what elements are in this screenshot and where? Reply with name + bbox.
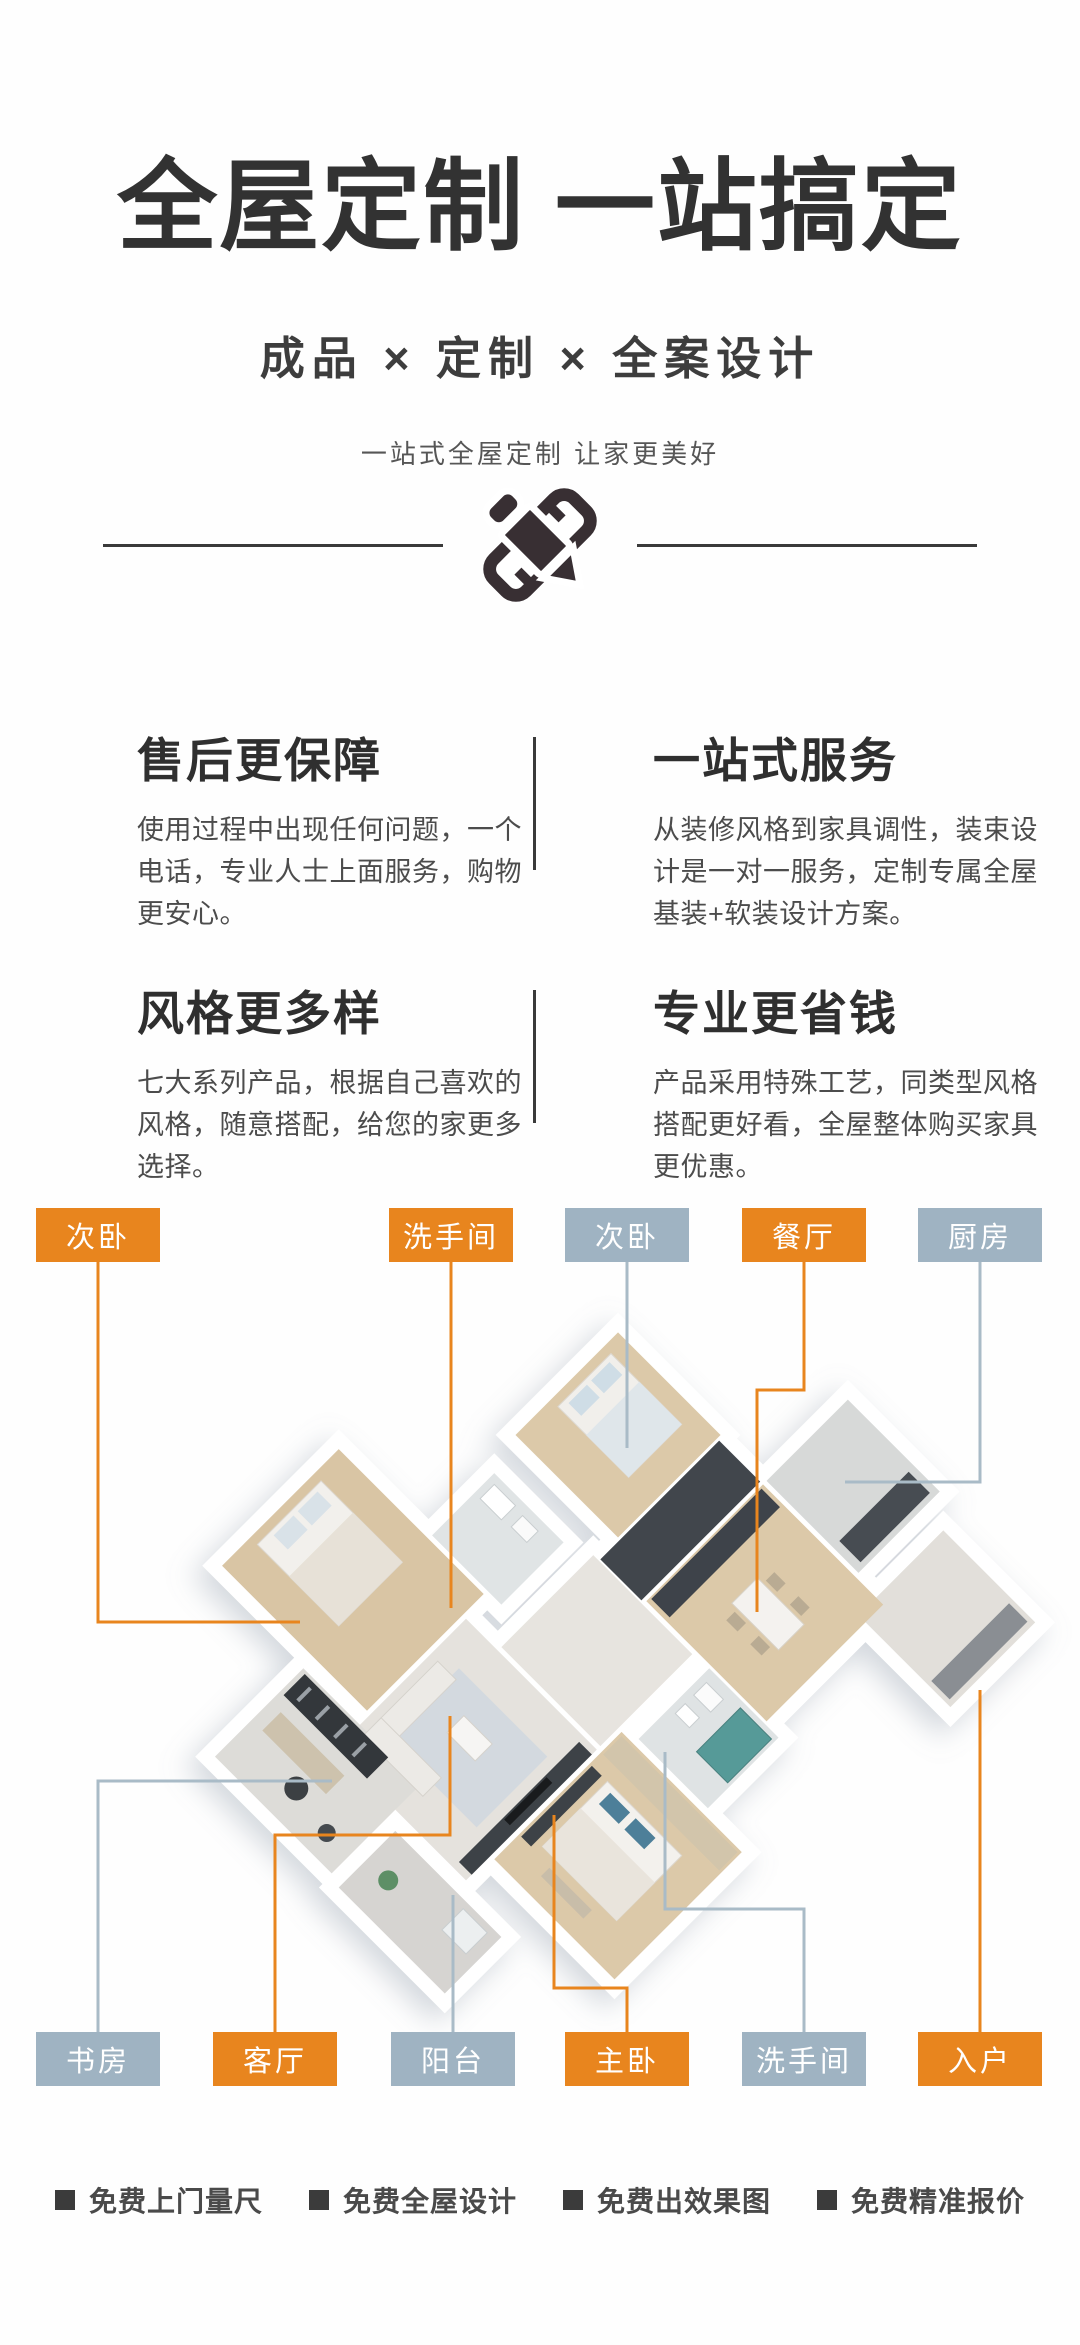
subtitle: 成品 × 定制 × 全案设计 xyxy=(0,322,1080,387)
square-bullet-icon xyxy=(55,2190,75,2210)
room-label-balcony: 阳台 xyxy=(391,2032,515,2086)
divider-line-left xyxy=(103,544,443,547)
promo-poster: 全屋定制 一站搞定 成品 × 定制 × 全案设计 一站式全屋定制 让家更美好 售… xyxy=(0,0,1080,2345)
square-bullet-icon xyxy=(309,2190,329,2210)
floorplan-section: 次卧 洗手间 次卧 餐厅 厨房 书房 客厅 阳台 主卧 洗手间 入户 xyxy=(0,1195,1080,2100)
feature-savings: 专业更省钱 产品采用特殊工艺，同类型风格搭配更好看，全屋整体购买家具更优惠。 xyxy=(653,990,1045,1188)
feature-desc: 使用过程中出现任何问题，一个电话，专业人士上面服务，购物更安心。 xyxy=(137,809,522,935)
room-label-dining: 餐厅 xyxy=(742,1208,866,1262)
service-footer: 免费上门量尺 免费全屋设计 免费出效果图 免费精准报价 xyxy=(0,2180,1080,2220)
footer-item-design: 免费全屋设计 xyxy=(309,2180,517,2220)
feature-divider-top xyxy=(533,737,536,870)
room-label-kitchen: 厨房 xyxy=(918,1208,1042,1262)
feature-onestop: 一站式服务 从装修风格到家具调性，装束设计是一对一服务，定制专属全屋基装+软装设… xyxy=(653,737,1045,935)
room-label-bathroom-top: 洗手间 xyxy=(389,1208,513,1262)
square-bullet-icon xyxy=(563,2190,583,2210)
footer-item-label: 免费精准报价 xyxy=(851,2180,1025,2220)
footer-item-label: 免费出效果图 xyxy=(597,2180,771,2220)
feature-styles: 风格更多样 七大系列产品，根据自己喜欢的风格，随意搭配，给您的家更多选择。 xyxy=(137,990,529,1188)
footer-item-label: 免费上门量尺 xyxy=(89,2180,263,2220)
room-label-study: 书房 xyxy=(36,2032,160,2086)
footer-item-quote: 免费精准报价 xyxy=(817,2180,1025,2220)
room-label-living: 客厅 xyxy=(213,2032,337,2086)
room-label-bedroom3-top: 次卧 xyxy=(565,1208,689,1262)
feature-desc: 产品采用特殊工艺，同类型风格搭配更好看，全屋整体购买家具更优惠。 xyxy=(653,1062,1038,1188)
square-bullet-icon xyxy=(817,2190,837,2210)
feature-title: 风格更多样 xyxy=(137,990,529,1037)
room-label-bathroom-bottom: 洗手间 xyxy=(742,2032,866,2086)
apartment-3d-model xyxy=(100,1195,1073,2100)
feature-title: 售后更保障 xyxy=(137,737,529,784)
divider-line-right xyxy=(637,544,977,547)
feature-divider-bottom xyxy=(533,990,536,1123)
feature-desc: 七大系列产品，根据自己喜欢的风格，随意搭配，给您的家更多选择。 xyxy=(137,1062,522,1188)
feature-desc: 从装修风格到家具调性，装束设计是一对一服务，定制专属全屋基装+软装设计方案。 xyxy=(653,809,1038,935)
header-divider xyxy=(0,455,1080,635)
page-title: 全屋定制 一站搞定 xyxy=(0,152,1080,262)
room-label-master: 主卧 xyxy=(565,2032,689,2086)
floorplan-render xyxy=(0,1195,1080,2100)
footer-item-measure: 免费上门量尺 xyxy=(55,2180,263,2220)
pencil-ruler-icon xyxy=(469,474,611,616)
footer-item-label: 免费全屋设计 xyxy=(343,2180,517,2220)
footer-item-render: 免费出效果图 xyxy=(563,2180,771,2220)
feature-grid: 售后更保障 使用过程中出现任何问题，一个电话，专业人士上面服务，购物更安心。 一… xyxy=(0,700,1080,1170)
room-label-entry: 入户 xyxy=(918,2032,1042,2086)
feature-title: 专业更省钱 xyxy=(653,990,1045,1037)
feature-title: 一站式服务 xyxy=(653,737,1045,784)
room-label-bedroom2-top: 次卧 xyxy=(36,1208,160,1262)
feature-aftersales: 售后更保障 使用过程中出现任何问题，一个电话，专业人士上面服务，购物更安心。 xyxy=(137,737,529,935)
